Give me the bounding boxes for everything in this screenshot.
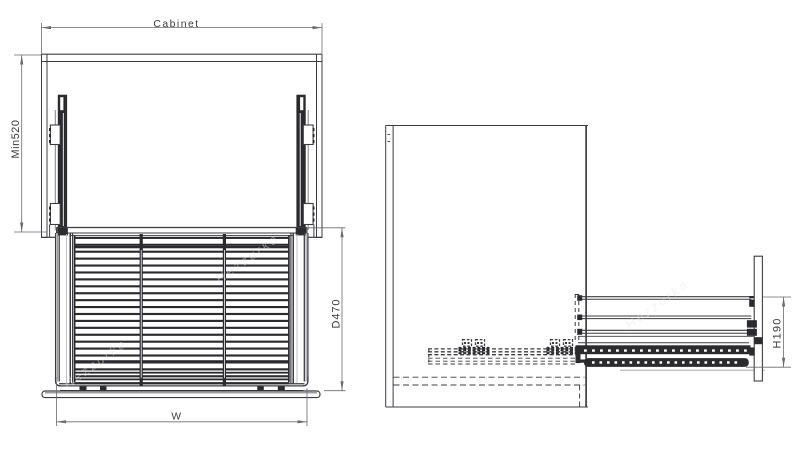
- svg-text:Cabinet: Cabinet: [153, 19, 199, 30]
- svg-text:H190: H190: [771, 317, 783, 348]
- svg-text:D470: D470: [331, 299, 343, 329]
- svg-text:W: W: [171, 412, 181, 423]
- svg-text:Min520: Min520: [10, 119, 22, 158]
